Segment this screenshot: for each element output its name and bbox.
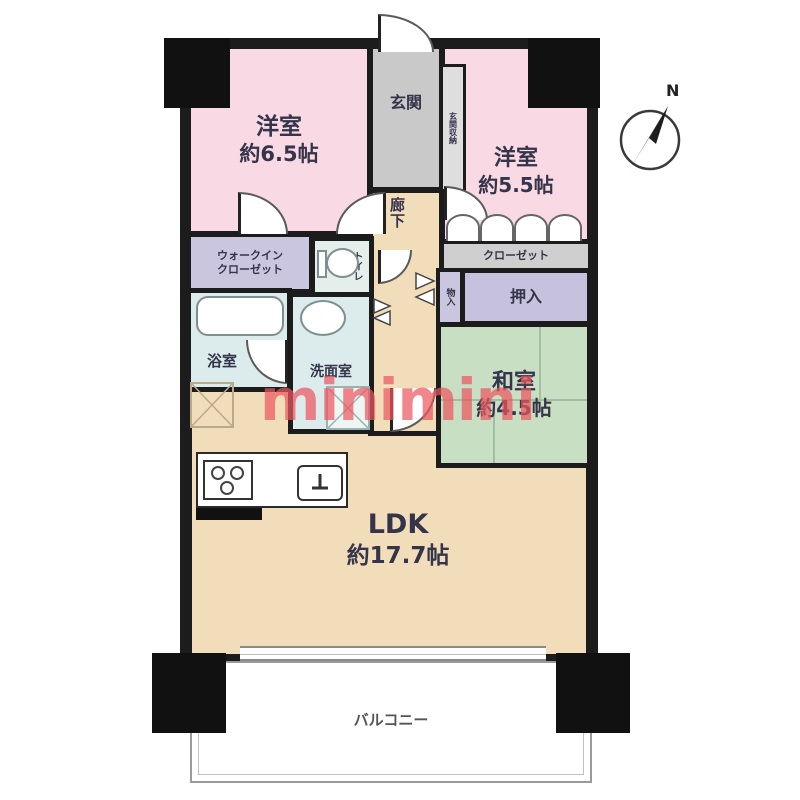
ldk-size: 約17.7帖 [318, 542, 478, 571]
japanese-size: 約4.5帖 [476, 396, 551, 421]
washbasin-icon [300, 300, 346, 336]
wic-label-2: クローゼット [217, 263, 283, 277]
closet-accordion-door-2 [480, 214, 514, 241]
toilet-bowl-icon [326, 248, 359, 278]
room-walk-in-closet: ウォークイン クローゼット [186, 232, 314, 294]
pillar-bottom-right [556, 653, 630, 733]
kitchen-sink-icon [296, 462, 344, 502]
room-entrance-storage: 玄関収納 [440, 64, 466, 192]
folding-door-icon-2 [372, 298, 392, 326]
pillar-top-left [164, 38, 230, 108]
entrance-storage-label: 玄関収納 [448, 112, 459, 144]
closet-label: クローゼット [483, 249, 549, 263]
balcony-window-track [240, 654, 546, 655]
tatami-line-v1 [539, 327, 541, 399]
room-oshiire: 押入 [460, 268, 592, 326]
ldk-name: LDK [318, 508, 478, 542]
pillar-top-right [528, 38, 600, 108]
storage-label: 物入 [444, 288, 457, 306]
western2-name: 洋室 [494, 145, 538, 173]
compass-n-label: N [666, 81, 679, 100]
ldk-label: LDK 約17.7帖 [318, 508, 478, 571]
balcony-window [240, 646, 546, 661]
balcony: バルコニー [190, 661, 592, 783]
entrance-label: 玄関 [390, 93, 422, 113]
stove-icon [203, 460, 253, 500]
pipe-space-icon [190, 382, 234, 428]
room-entrance: 玄関 [368, 44, 444, 192]
closet-accordion-door-4 [548, 214, 582, 241]
bathroom-label: 浴室 [207, 352, 237, 371]
wic-label-1: ウォークイン [217, 249, 283, 263]
washer-pan-icon [326, 386, 370, 430]
hallway-label: 廊下 [387, 197, 408, 229]
entrance-door-arc [378, 14, 434, 52]
kitchen-counter-edge [196, 508, 262, 520]
western1-size: 約6.5帖 [239, 141, 318, 167]
closet-accordion-door-1 [446, 214, 480, 241]
bathtub-icon [196, 296, 284, 336]
japanese-name: 和室 [492, 369, 536, 397]
western2-size: 約5.5帖 [478, 173, 553, 198]
floor-plan: 廊下 洋室 約6.5帖 玄関 洋室 約5.5帖 玄関収納 クローゼット ウォーク… [0, 0, 800, 800]
closet-accordion-door-3 [514, 214, 548, 241]
pillar-bottom-left [152, 653, 226, 733]
western1-name: 洋室 [256, 113, 302, 142]
folding-door-icon-1 [414, 272, 436, 306]
compass-icon: N [606, 74, 698, 184]
oshiire-label: 押入 [510, 287, 542, 307]
washroom-label: 洗面室 [293, 364, 369, 382]
room-japanese: 和室 約4.5帖 [436, 322, 592, 468]
balcony-label: バルコニー [192, 711, 590, 730]
